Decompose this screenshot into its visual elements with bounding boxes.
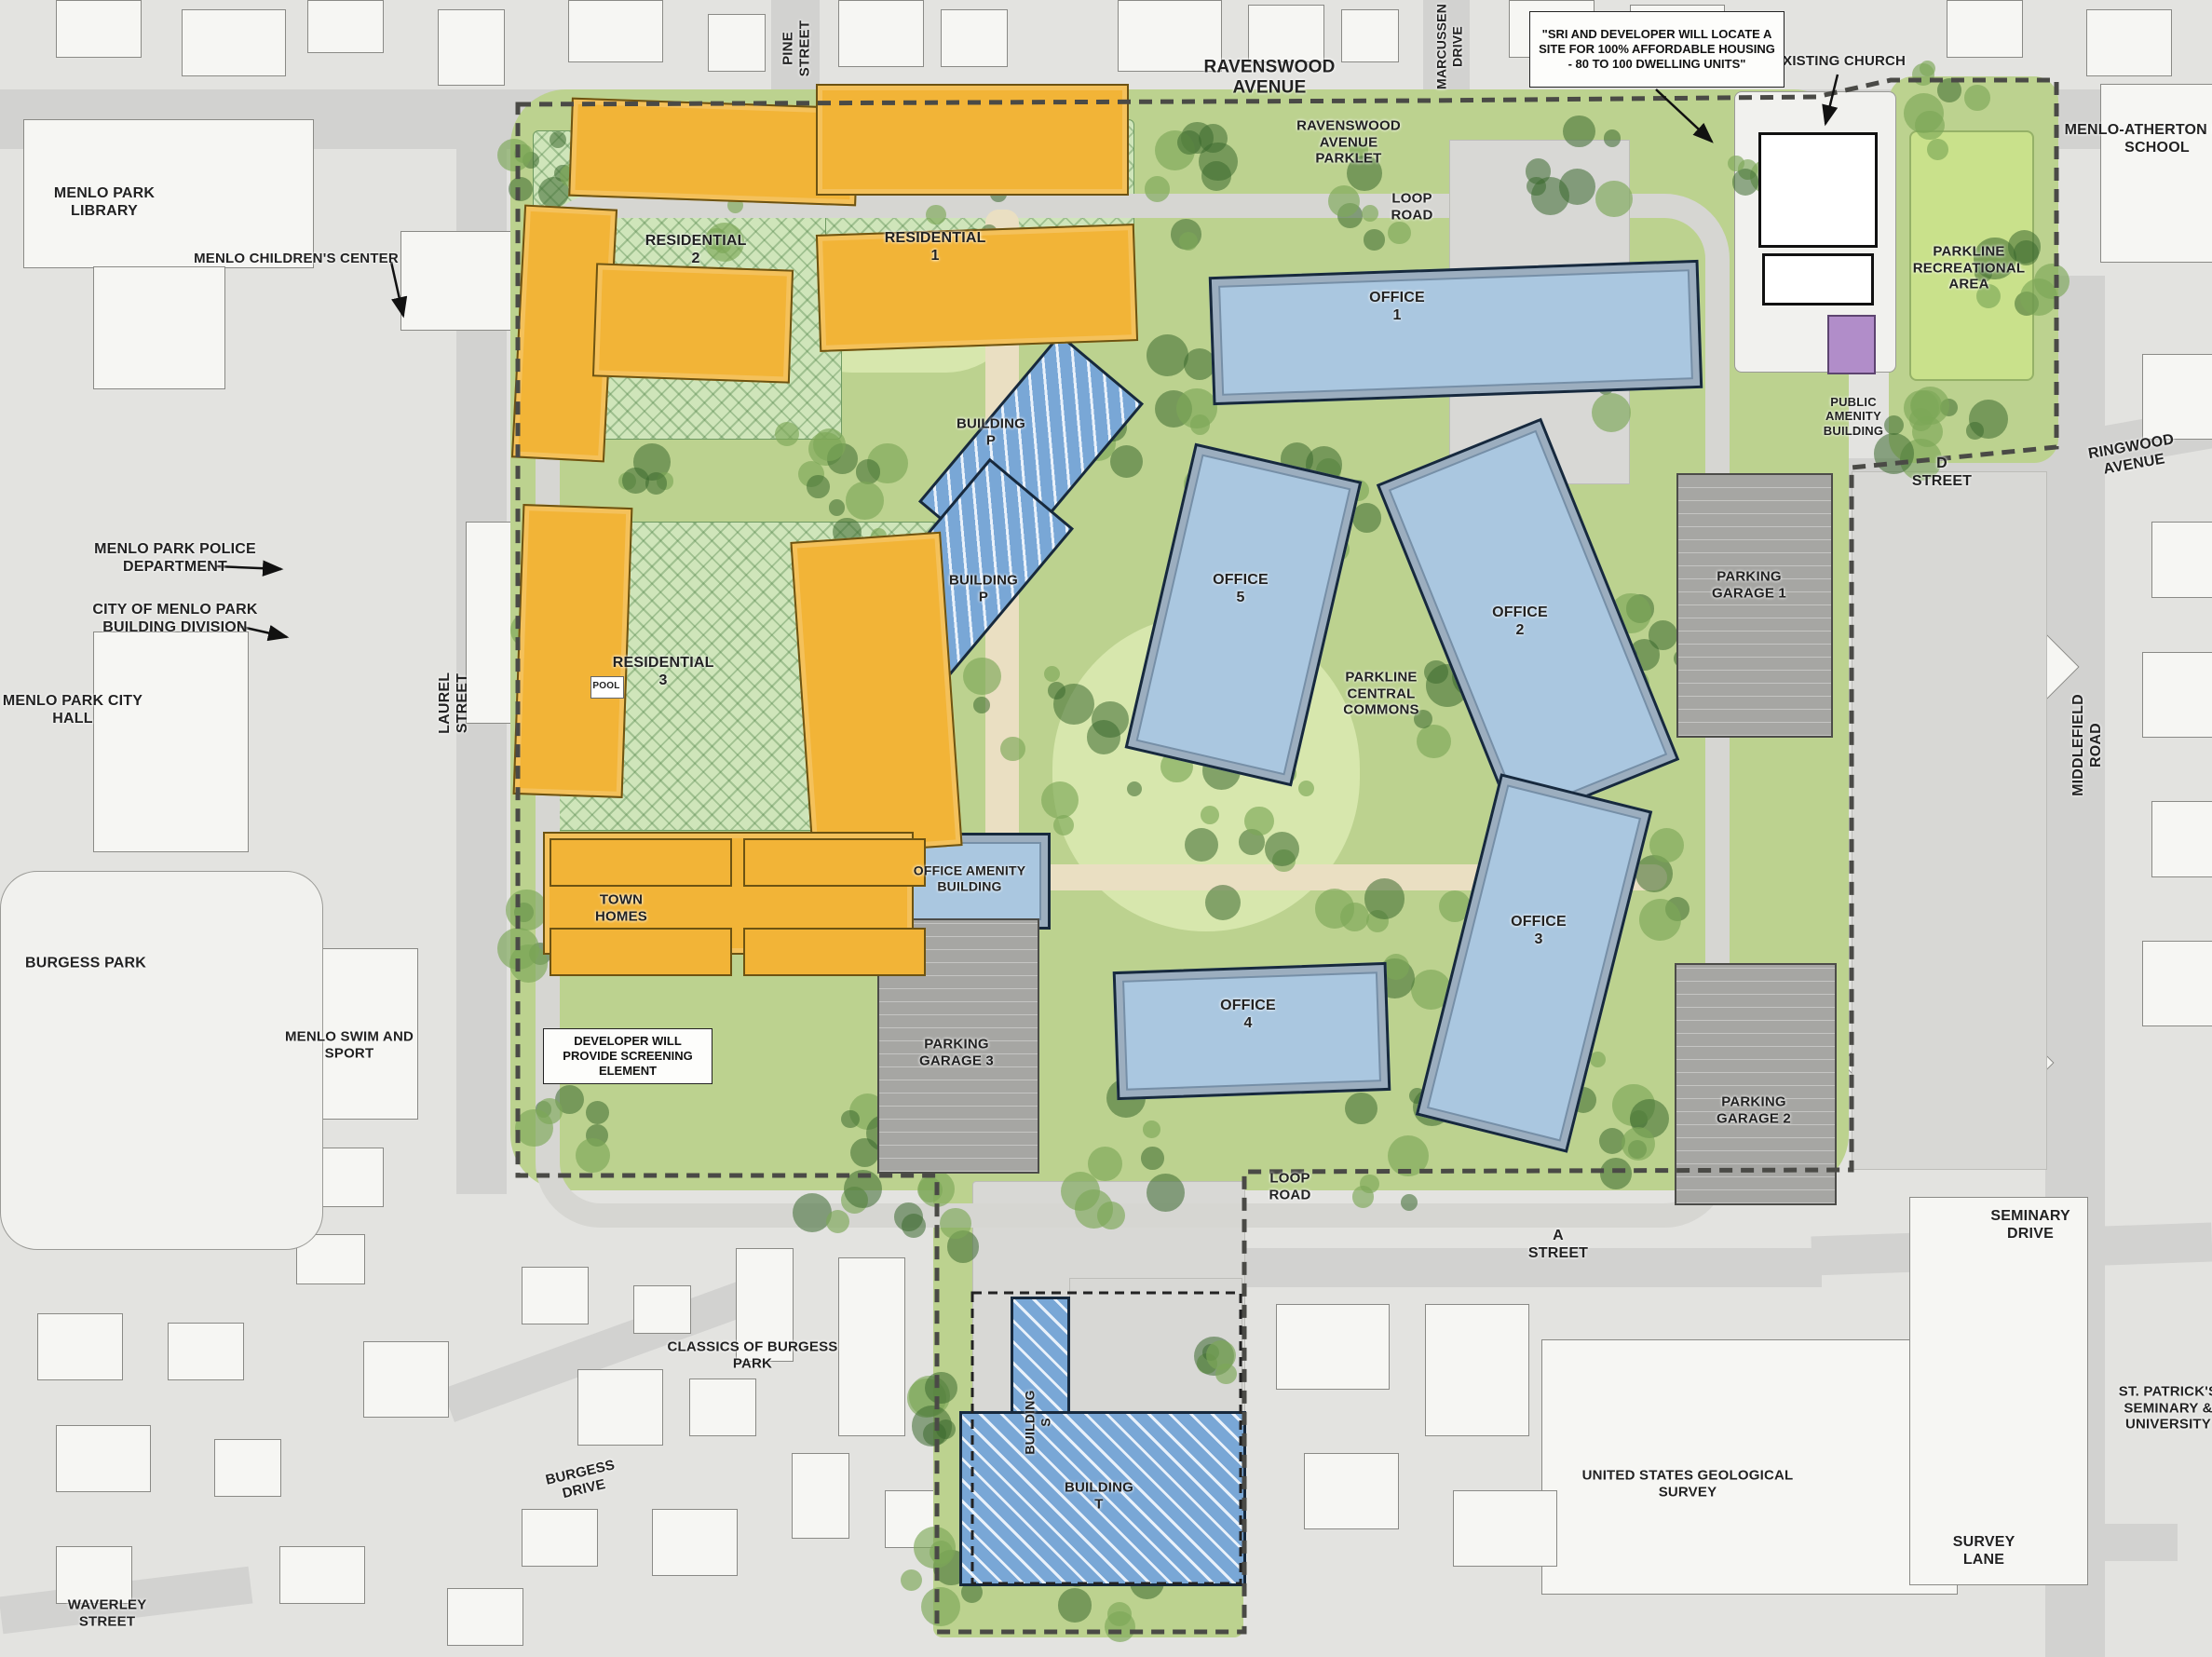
tree-icon: [1147, 334, 1188, 376]
tree-icon: [705, 223, 744, 262]
office-1: [1209, 260, 1703, 405]
context-building: [1541, 1339, 1958, 1595]
context-building: [37, 1313, 123, 1380]
police-department-arrow: [216, 566, 281, 569]
context-building: [23, 119, 314, 268]
context-building: [568, 0, 663, 62]
building-t: [959, 1411, 1246, 1586]
church-hall: [1762, 253, 1874, 306]
context-building: [182, 9, 286, 76]
tree-icon: [1053, 815, 1074, 835]
tree-icon: [1563, 115, 1595, 147]
tree-icon: [1364, 878, 1405, 918]
context-building: [279, 1546, 365, 1604]
burgess-park-field: [0, 871, 323, 1250]
tree-icon: [926, 205, 945, 224]
tree-icon: [1874, 433, 1914, 473]
context-building: [633, 1285, 691, 1334]
tree-icon: [509, 177, 533, 201]
context-building: [93, 632, 249, 852]
tree-icon: [645, 472, 667, 494]
place-label-menlo-park-police-department: MENLO PARK POLICE DEPARTMENT: [61, 541, 290, 577]
residential-2-south: [592, 263, 794, 383]
context-building: [447, 1588, 523, 1646]
tree-icon: [1092, 701, 1128, 738]
tree-icon: [586, 1101, 609, 1124]
tree-icon: [1147, 1174, 1185, 1212]
a-street-road: [1242, 1248, 1822, 1287]
tree-icon: [1732, 169, 1758, 195]
tree-icon: [1315, 889, 1354, 928]
tree-icon: [1298, 781, 1314, 796]
tree-icon: [1595, 181, 1632, 217]
tree-icon: [2034, 264, 2070, 299]
tree-icon: [902, 1214, 926, 1238]
tree-icon: [1143, 1121, 1160, 1138]
residential-1-north: [816, 84, 1129, 196]
tree-icon: [1592, 393, 1631, 432]
tree-icon: [1110, 445, 1143, 478]
context-building: [2142, 354, 2212, 440]
context-building: [838, 1257, 905, 1436]
marcussen-drive-road: [1423, 0, 1470, 91]
context-building: [438, 9, 505, 86]
town-homes-row1-west: [550, 838, 732, 887]
existing-church-building: [1758, 132, 1878, 248]
tree-icon: [1000, 737, 1025, 762]
tree-icon: [775, 422, 799, 446]
tree-icon: [506, 890, 548, 931]
context-building: [1425, 1304, 1529, 1436]
tree-icon: [1352, 503, 1381, 532]
street-label-burgess-drive: BURGESS DRIVE: [544, 1457, 620, 1504]
tree-icon: [940, 1208, 970, 1239]
tree-icon: [1044, 666, 1060, 682]
tree-icon: [1075, 1189, 1114, 1229]
context-building: [838, 0, 924, 67]
tree-icon: [1639, 899, 1681, 941]
context-building: [1453, 1490, 1557, 1567]
place-label-st-patricks-seminary-university: ST. PATRICK'S SEMINARY & UNIVERSITY: [2101, 1383, 2212, 1433]
context-building: [2151, 801, 2212, 877]
tree-icon: [1360, 1175, 1379, 1194]
tree-icon: [1600, 1158, 1632, 1189]
tree-icon: [1199, 124, 1228, 153]
screening-element-note: DEVELOPER WILL PROVIDE SCREENING ELEMENT: [543, 1028, 712, 1084]
context-building: [1909, 1197, 2088, 1585]
tree-icon: [2014, 240, 2039, 265]
context-building: [1947, 0, 2023, 58]
tree-icon: [497, 928, 539, 970]
context-building: [1304, 1453, 1399, 1529]
tree-icon: [1388, 222, 1410, 244]
tree-icon: [1401, 1194, 1418, 1211]
residential-1-south: [816, 224, 1138, 352]
tree-icon: [925, 1372, 957, 1405]
pine-street-road: [771, 0, 820, 91]
tree-icon: [1964, 85, 1990, 111]
tree-icon: [856, 459, 880, 483]
tree-icon: [1364, 229, 1384, 250]
tree-icon: [1053, 684, 1094, 725]
tree-icon: [1884, 415, 1904, 435]
context-building: [2100, 84, 2212, 263]
tree-icon: [1649, 828, 1684, 862]
town-homes-row2-west: [550, 928, 732, 976]
context-building: [736, 1248, 794, 1362]
tree-icon: [807, 475, 830, 498]
town-homes-row2-east: [743, 928, 926, 976]
context-building: [2151, 522, 2212, 598]
town-homes-row1-east: [743, 838, 926, 887]
context-building: [307, 0, 384, 53]
context-building: [214, 1439, 281, 1497]
tree-icon: [1215, 1364, 1237, 1385]
tree-icon: [1531, 177, 1569, 215]
residential-3-west: [513, 504, 633, 798]
east-strip-parking: [1852, 471, 2047, 1170]
tree-icon: [917, 1177, 943, 1202]
tree-icon: [1058, 1588, 1092, 1622]
tree-icon: [1937, 78, 1961, 102]
tree-icon: [901, 1569, 922, 1591]
tree-icon: [973, 697, 990, 713]
tree-icon: [1915, 111, 1944, 140]
site-plan-map: PINE STREETRAVENSWOOD AVENUEMARCUSSEN DR…: [0, 0, 2212, 1657]
public-amenity-building: [1827, 315, 1876, 374]
tree-icon: [1966, 422, 1983, 439]
context-building: [1118, 0, 1222, 72]
tree-icon: [846, 482, 883, 519]
residential-pool: [590, 676, 624, 699]
residential-3-east: [790, 532, 962, 856]
context-building: [792, 1453, 849, 1539]
context-building: [2086, 9, 2172, 76]
tree-icon: [813, 428, 846, 461]
context-building: [708, 14, 766, 72]
tree-icon: [1347, 156, 1382, 191]
context-building: [56, 1546, 132, 1604]
parking-garage-2: [1675, 963, 1837, 1205]
context-building: [1248, 5, 1324, 62]
context-building: [93, 266, 225, 389]
context-building: [2142, 941, 2212, 1026]
context-building: [577, 1369, 663, 1446]
tree-icon: [1088, 1147, 1122, 1181]
tree-icon: [1328, 185, 1360, 217]
office-4: [1113, 962, 1391, 1100]
tree-icon: [1604, 129, 1622, 147]
tree-icon: [1141, 1147, 1164, 1170]
context-building: [56, 1425, 151, 1492]
tree-icon: [1145, 176, 1171, 202]
context-building: [168, 1323, 244, 1380]
context-building: [2142, 652, 2212, 738]
tree-icon: [1201, 806, 1219, 824]
tree-icon: [936, 1419, 956, 1439]
tree-icon: [1185, 828, 1218, 862]
context-building: [56, 0, 142, 58]
tree-icon: [1244, 807, 1273, 835]
tree-icon: [793, 1193, 832, 1232]
context-building: [689, 1379, 756, 1436]
tree-icon: [1910, 390, 1941, 421]
tree-icon: [1105, 1611, 1135, 1642]
context-building: [363, 1341, 449, 1418]
tree-icon: [1927, 139, 1948, 160]
context-building: [941, 9, 1008, 67]
tree-icon: [1265, 832, 1299, 866]
tree-icon: [576, 1138, 610, 1173]
context-building: [1341, 9, 1399, 62]
context-building: [652, 1509, 738, 1576]
tree-icon: [514, 144, 533, 163]
tree-icon: [963, 658, 1000, 695]
tree-icon: [1590, 1052, 1606, 1067]
tree-icon: [1179, 232, 1198, 251]
context-building: [522, 1267, 589, 1324]
tree-icon: [1345, 1093, 1377, 1124]
parking-garage-1: [1676, 473, 1833, 738]
tree-icon: [921, 1587, 960, 1626]
tree-icon: [826, 1210, 849, 1233]
sri-affordable-housing-note: "SRI AND DEVELOPER WILL LOCATE A SITE FO…: [1529, 11, 1785, 88]
tree-icon: [844, 1170, 882, 1208]
context-building: [522, 1509, 598, 1567]
context-building: [1276, 1304, 1390, 1390]
tree-icon: [829, 499, 846, 516]
tree-icon: [1728, 156, 1744, 172]
